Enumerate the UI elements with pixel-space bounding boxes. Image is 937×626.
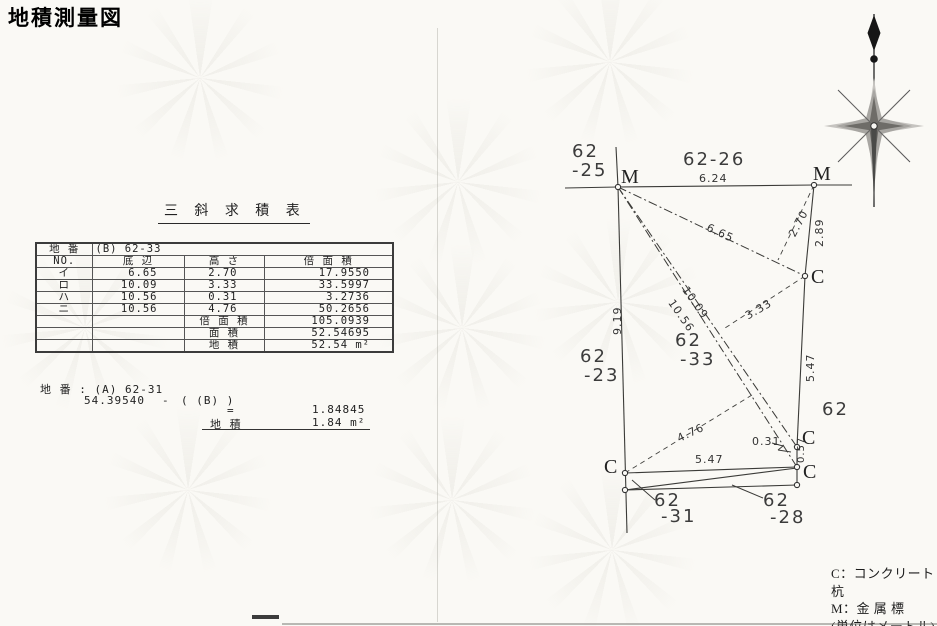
dim-5-47-right: 5.47 <box>804 354 817 383</box>
point-c-right <box>802 273 807 278</box>
dim-9-19: 9.19 <box>611 307 624 336</box>
legend-concrete-stake: C：コンクリート杭 <box>831 565 937 600</box>
parcel-62-25-line1: 62 <box>572 141 599 162</box>
leader-0-31-c <box>778 450 791 452</box>
legend: C：コンクリート杭 M：金 属 標 (単位はメートル) <box>831 565 937 626</box>
parcel-62-23-line1: 62 <box>580 346 607 367</box>
point-bottomleft-lower <box>622 487 627 492</box>
dim-0-57: 0.57 <box>796 437 807 463</box>
dim-0-31: 0.31 <box>752 435 781 448</box>
scan-artifact-dash <box>252 615 279 619</box>
parcel-62-28-line2: -28 <box>770 507 805 528</box>
parcel-62-25-line2: -25 <box>572 160 607 181</box>
point-m-topleft <box>615 184 620 189</box>
boundary-top-6-24 <box>618 185 814 187</box>
dim-5-47-bottom: 5.47 <box>695 453 724 466</box>
parcel-62-31-line2: -31 <box>661 506 696 527</box>
parcel-62-right: 62 <box>822 399 849 420</box>
marker-label-c-right: C <box>811 266 824 289</box>
road-line-left <box>565 187 618 188</box>
point-bottomright-low <box>794 482 799 487</box>
survey-document-page: 地積測量図 三 斜 求 積 表 地 番 (B) 62-33 NO. 底 辺 高 … <box>0 0 937 626</box>
boundary-bottom-5-47 <box>625 467 797 473</box>
parcel-62-23-line2: -23 <box>584 365 619 386</box>
boundary-left-9-19 <box>618 187 627 533</box>
legend-metal-marker: M：金 属 標 <box>831 600 937 618</box>
boundary-bottom-diagonal <box>625 468 797 490</box>
parcel-62-33-line1: 62 <box>675 330 702 351</box>
marker-label-m-right: M <box>813 163 831 186</box>
dim-2-89: 2.89 <box>813 219 826 248</box>
dim-6-24: 6.24 <box>699 172 728 185</box>
scan-bottom-edge <box>282 623 937 625</box>
parcel-62-26: 62-26 <box>683 149 745 170</box>
marker-label-m-left: M <box>621 166 639 189</box>
point-c-bottomright-lower <box>794 464 799 469</box>
marker-label-c-bottomleft: C <box>604 456 617 479</box>
point-c-bottomleft <box>622 470 627 475</box>
boundary-left-spur <box>616 147 618 187</box>
parcel-62-33-line2: -33 <box>680 349 715 370</box>
survey-drawing <box>0 0 937 626</box>
compass-rose-icon <box>824 14 924 207</box>
marker-label-c-bottomright-lower: C <box>803 461 816 484</box>
